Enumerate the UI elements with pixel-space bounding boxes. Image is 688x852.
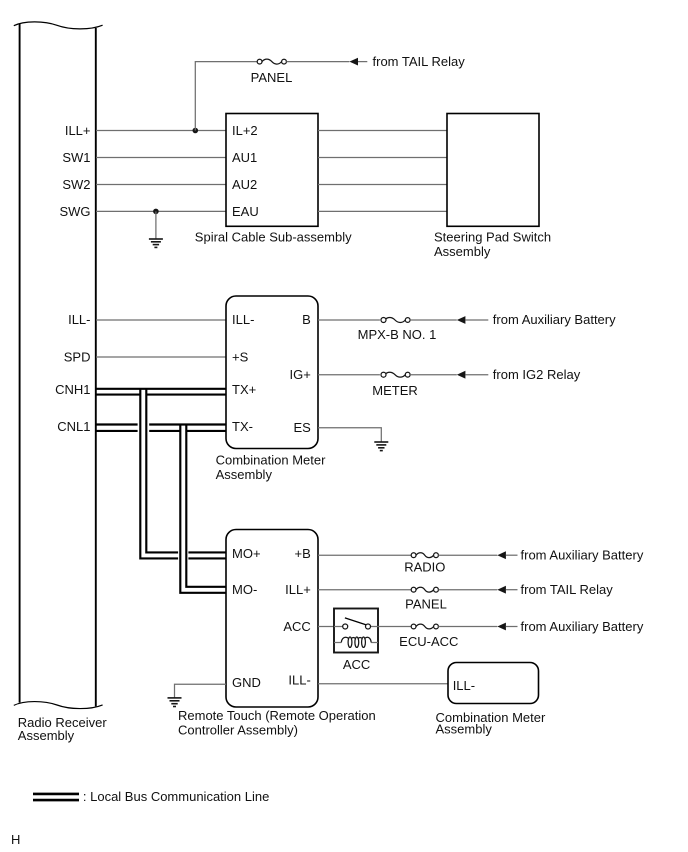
svg-text:Combination Meter: Combination Meter — [216, 452, 326, 467]
svg-text:+S: +S — [232, 350, 249, 365]
svg-text:GND: GND — [232, 675, 261, 690]
svg-text:ACC: ACC — [343, 657, 370, 672]
svg-text:AU2: AU2 — [232, 177, 257, 192]
svg-text:SW1: SW1 — [62, 150, 90, 165]
svg-text:ILL-: ILL- — [288, 672, 310, 687]
svg-text:H: H — [11, 832, 20, 847]
svg-text:METER: METER — [372, 383, 418, 398]
svg-text:Spiral Cable Sub-assembly: Spiral Cable Sub-assembly — [195, 230, 352, 245]
svg-text:AU1: AU1 — [232, 150, 257, 165]
svg-text:from TAIL Relay: from TAIL Relay — [521, 582, 614, 597]
svg-text:ECU-ACC: ECU-ACC — [399, 634, 458, 649]
svg-text:IG+: IG+ — [289, 367, 310, 382]
svg-text:from Auxiliary Battery: from Auxiliary Battery — [521, 548, 644, 563]
svg-text:Assembly: Assembly — [434, 244, 491, 259]
svg-text:Remote Touch (Remote Operation: Remote Touch (Remote Operation — [178, 708, 376, 723]
svg-text:IL+2: IL+2 — [232, 123, 258, 138]
svg-text:CNH1: CNH1 — [55, 382, 90, 397]
svg-text:RADIO: RADIO — [404, 559, 445, 574]
svg-text:Steering Pad Switch: Steering Pad Switch — [434, 230, 551, 245]
svg-text:TX+: TX+ — [232, 382, 256, 397]
svg-text:SWG: SWG — [59, 204, 90, 219]
svg-text:ILL-: ILL- — [68, 312, 90, 327]
svg-text:ACC: ACC — [283, 619, 310, 634]
svg-text:ILL+: ILL+ — [285, 582, 311, 597]
svg-text:MO+: MO+ — [232, 546, 261, 561]
svg-text:from IG2 Relay: from IG2 Relay — [493, 367, 581, 382]
svg-text:MPX-B NO. 1: MPX-B NO. 1 — [358, 327, 437, 342]
svg-text:Assembly: Assembly — [18, 728, 75, 743]
svg-text:Assembly: Assembly — [216, 467, 273, 482]
svg-text:PANEL: PANEL — [405, 597, 447, 612]
svg-text:B: B — [302, 312, 311, 327]
svg-text:SW2: SW2 — [62, 177, 90, 192]
svg-text:SPD: SPD — [64, 350, 91, 365]
svg-text:TX-: TX- — [232, 419, 253, 434]
svg-text:from Auxiliary Battery: from Auxiliary Battery — [493, 312, 616, 327]
svg-text:Assembly: Assembly — [436, 722, 493, 737]
svg-text:: Local Bus Communication Line: : Local Bus Communication Line — [83, 789, 269, 804]
svg-text:+B: +B — [295, 546, 311, 561]
svg-text:from TAIL Relay: from TAIL Relay — [373, 54, 466, 69]
svg-text:MO-: MO- — [232, 582, 257, 597]
svg-text:Controller Assembly): Controller Assembly) — [178, 723, 298, 738]
svg-text:PANEL: PANEL — [251, 70, 293, 85]
svg-text:CNL1: CNL1 — [57, 419, 90, 434]
svg-text:from Auxiliary Battery: from Auxiliary Battery — [521, 619, 644, 634]
svg-text:ES: ES — [293, 420, 311, 435]
svg-text:ILL-: ILL- — [453, 678, 475, 693]
svg-text:ILL-: ILL- — [232, 312, 254, 327]
svg-text:ILL+: ILL+ — [65, 123, 91, 138]
svg-text:EAU: EAU — [232, 204, 259, 219]
